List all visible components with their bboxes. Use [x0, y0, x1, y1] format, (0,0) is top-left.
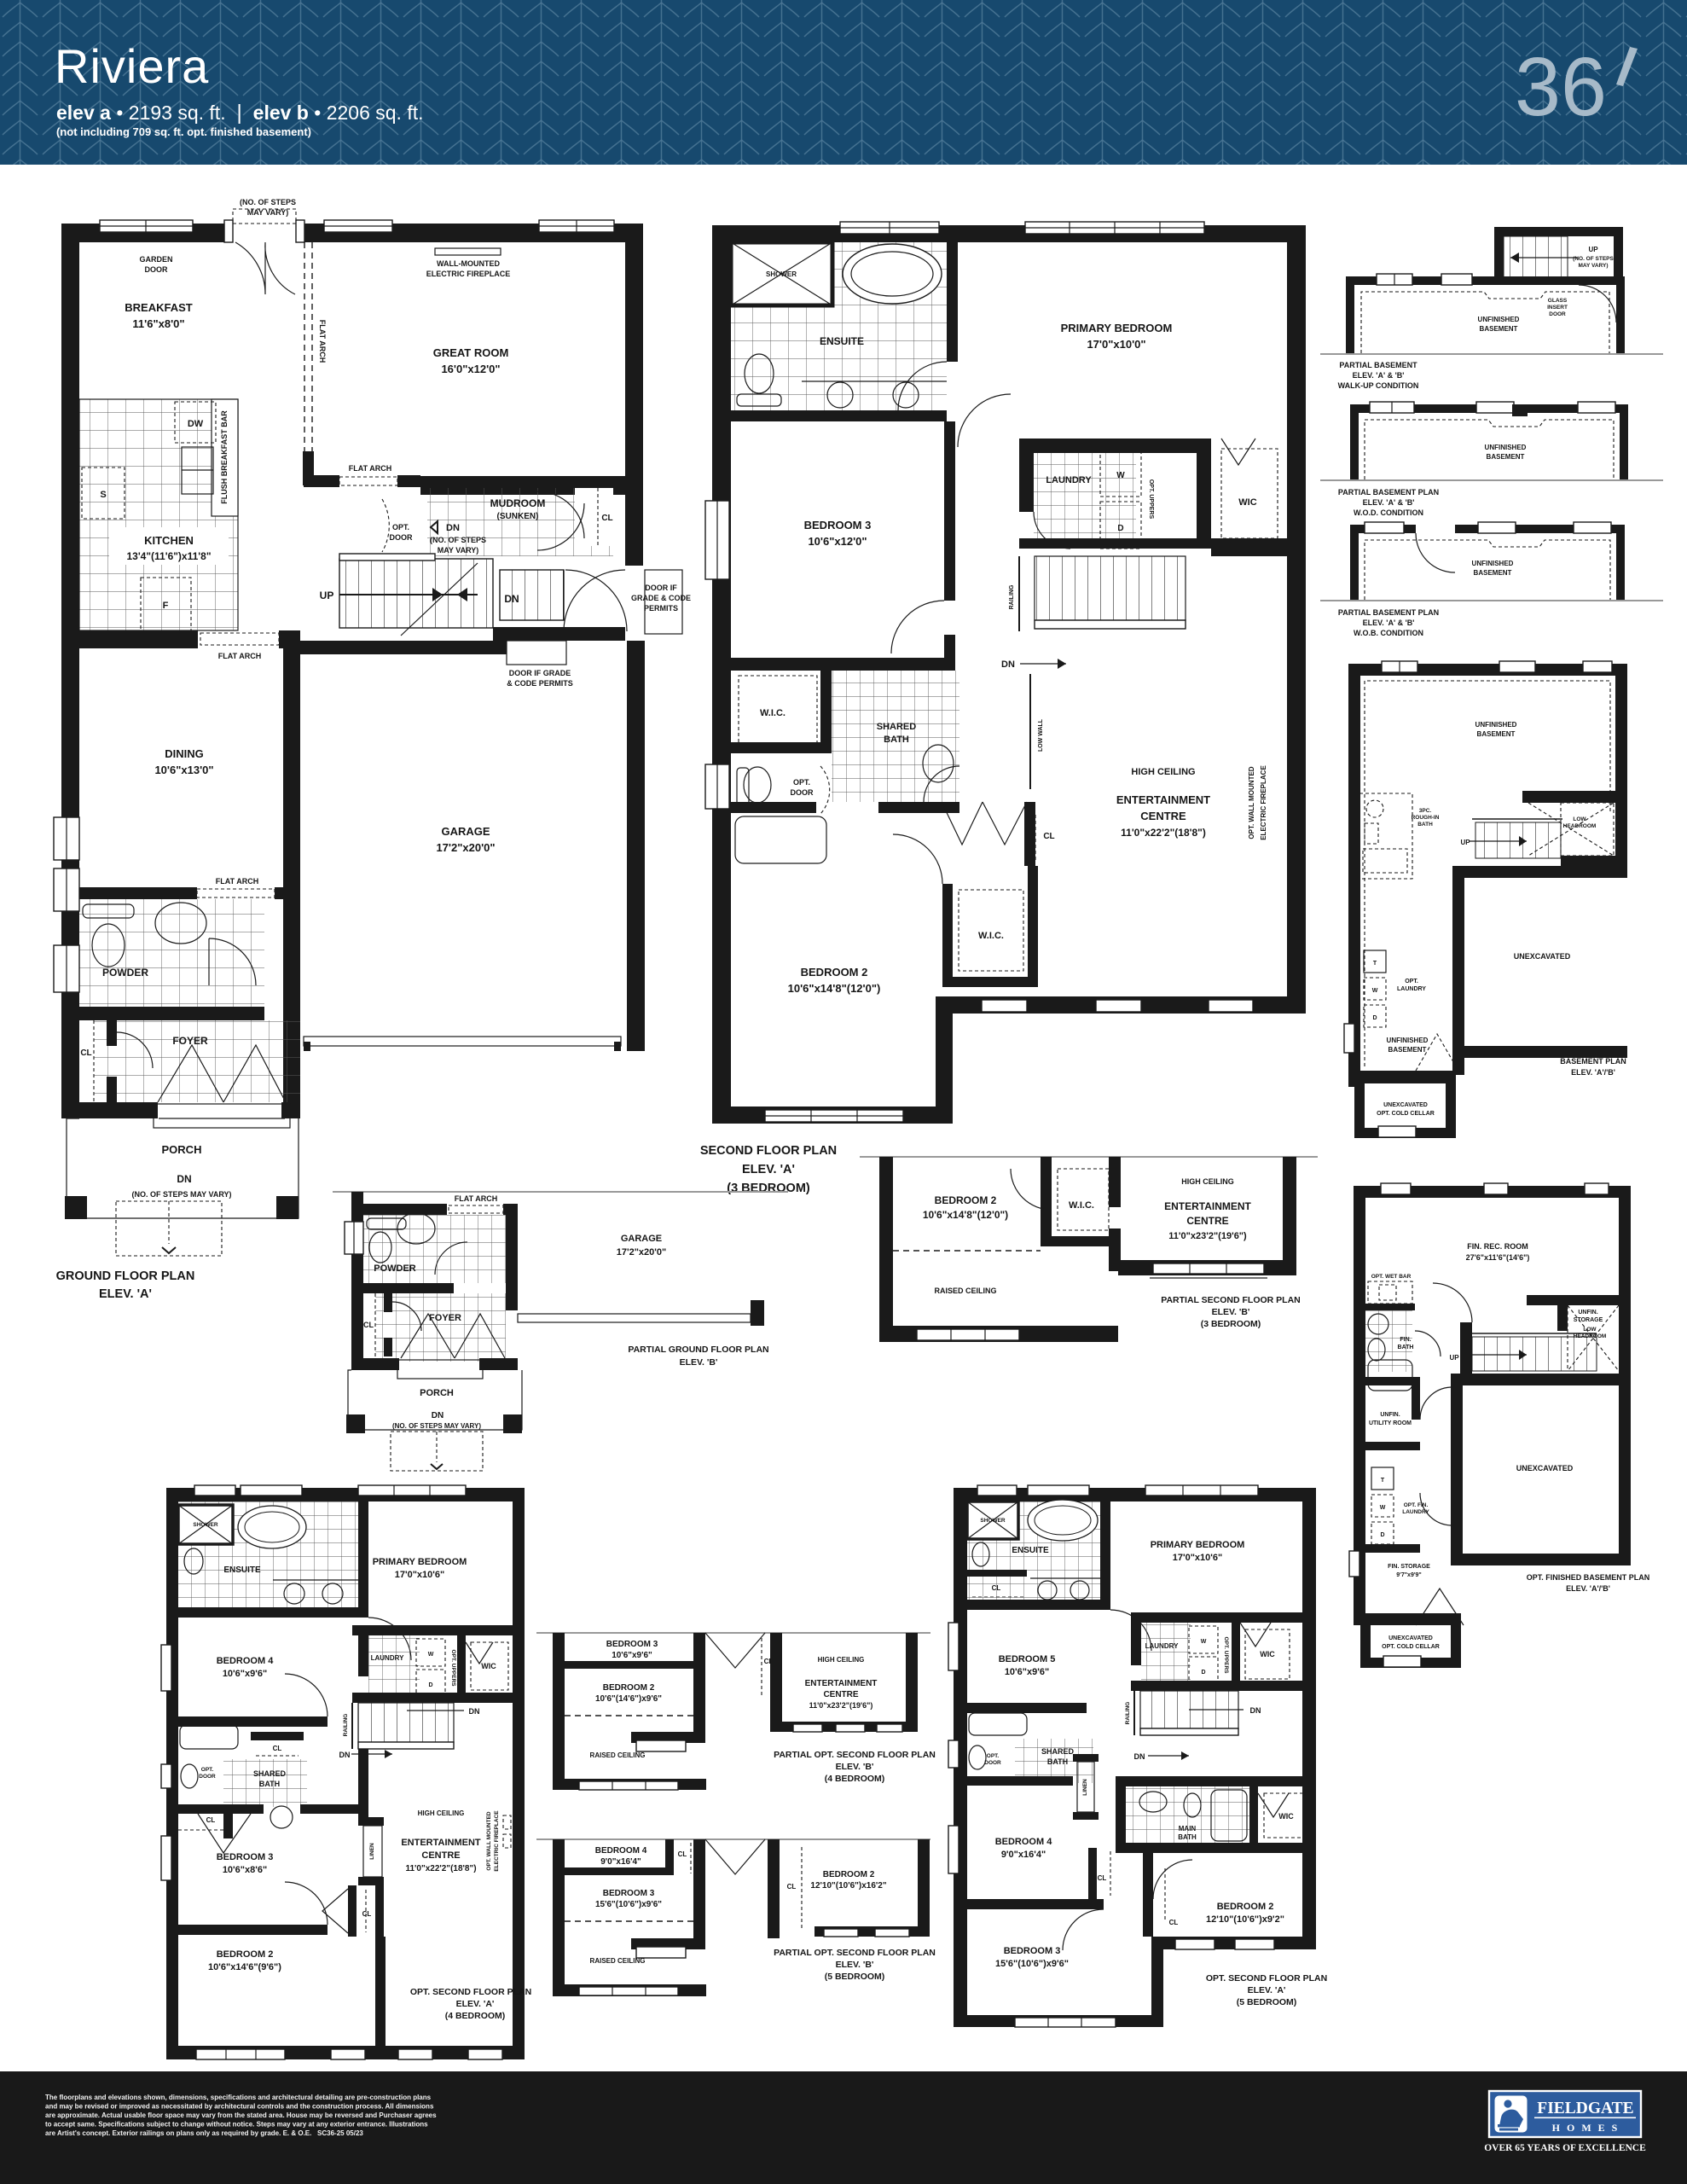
svg-text:W: W: [428, 1652, 434, 1658]
svg-text:CENTRE: CENTRE: [421, 1850, 460, 1861]
svg-text:FOYER: FOYER: [429, 1313, 461, 1323]
svg-text:PRIMARY BEDROOM: PRIMARY BEDROOM: [1061, 322, 1173, 334]
svg-text:ELEV. 'A' & 'B': ELEV. 'A' & 'B': [1363, 498, 1415, 507]
svg-text:UNFINISHED: UNFINISHED: [1472, 560, 1514, 567]
svg-text:17'2"x20'0": 17'2"x20'0": [436, 841, 495, 854]
svg-text:DOOR: DOOR: [199, 1774, 216, 1780]
svg-text:11'0"x22'2"(18'8"): 11'0"x22'2"(18'8"): [405, 1864, 476, 1873]
svg-text:MAIN: MAIN: [1179, 1825, 1197, 1833]
svg-text:T: T: [1381, 1478, 1385, 1484]
svg-text:PARTIAL BASEMENT: PARTIAL BASEMENT: [1339, 361, 1417, 369]
svg-text:WIC: WIC: [481, 1662, 496, 1670]
svg-text:(SUNKEN): (SUNKEN): [497, 512, 539, 521]
svg-text:10'6"x12'0": 10'6"x12'0": [808, 535, 867, 548]
svg-text:9'7"x9'9": 9'7"x9'9": [1396, 1572, 1421, 1578]
svg-text:FLAT ARCH: FLAT ARCH: [349, 464, 392, 473]
svg-text:CENTRE: CENTRE: [1186, 1215, 1228, 1227]
svg-text:SHARED: SHARED: [1041, 1747, 1075, 1756]
svg-text:LOW: LOW: [1583, 1327, 1597, 1333]
svg-text:PRIMARY BEDROOM: PRIMARY BEDROOM: [1151, 1540, 1245, 1550]
svg-text:17'2"x20'0": 17'2"x20'0": [617, 1247, 667, 1258]
svg-text:BATH: BATH: [1178, 1833, 1197, 1841]
svg-text:UNFINISHED: UNFINISHED: [1485, 444, 1527, 451]
svg-text:W.I.C.: W.I.C.: [1069, 1200, 1094, 1211]
svg-text:DN: DN: [1001, 659, 1015, 670]
svg-text:The floorplans and elevations: The floorplans and elevations shown, dim…: [45, 2094, 432, 2101]
svg-text:CL: CL: [362, 1910, 372, 1918]
svg-text:(3 BEDROOM): (3 BEDROOM): [1201, 1319, 1261, 1329]
svg-text:ELEV. 'B': ELEV. 'B': [836, 1960, 874, 1970]
svg-text:PORCH: PORCH: [162, 1143, 202, 1156]
svg-text:(not including 709 sq. ft. opt: (not including 709 sq. ft. opt. finished…: [56, 125, 311, 138]
svg-text:10'6"(14'6")x9'6": 10'6"(14'6")x9'6": [595, 1694, 662, 1704]
svg-text:BATH: BATH: [1417, 822, 1433, 828]
svg-text:UNEXCAVATED: UNEXCAVATED: [1516, 1464, 1574, 1472]
svg-text:OPT. UPPERS: OPT. UPPERS: [1223, 1637, 1229, 1675]
svg-text:12'10"(10'6")x9'2": 12'10"(10'6")x9'2": [1206, 1914, 1284, 1925]
svg-text:BASEMENT: BASEMENT: [1480, 325, 1518, 333]
svg-text:GARAGE: GARAGE: [621, 1234, 662, 1244]
svg-text:BASEMENT: BASEMENT: [1388, 1046, 1427, 1054]
svg-text:RAILING: RAILING: [343, 1714, 349, 1737]
svg-text:UNFIN.: UNFIN.: [1578, 1310, 1597, 1316]
svg-text:POWDER: POWDER: [374, 1263, 416, 1274]
svg-text:DN: DN: [339, 1751, 351, 1759]
svg-text:ELEV. 'B': ELEV. 'B': [680, 1357, 718, 1368]
svg-text:RAILING: RAILING: [1125, 1702, 1131, 1725]
svg-text:11'6"x8'0": 11'6"x8'0": [132, 317, 184, 330]
svg-text:(NO. OF STEPS: (NO. OF STEPS: [1573, 256, 1614, 262]
svg-text:BEDROOM 4: BEDROOM 4: [217, 1656, 275, 1666]
svg-text:OVER 65 YEARS OF EXCELLENCE: OVER 65 YEARS OF EXCELLENCE: [1484, 2143, 1646, 2153]
svg-text:UP: UP: [1449, 1354, 1459, 1362]
svg-text:10'6"x14'8"(12'0"): 10'6"x14'8"(12'0"): [788, 982, 881, 995]
svg-text:LAUNDRY: LAUNDRY: [371, 1654, 404, 1662]
svg-text:OPT.: OPT.: [1405, 979, 1418, 985]
svg-text:17'0"x10'6": 17'0"x10'6": [1173, 1553, 1223, 1563]
svg-text:W: W: [1116, 471, 1125, 480]
svg-text:BASEMENT: BASEMENT: [1477, 730, 1516, 738]
svg-text:BEDROOM 2: BEDROOM 2: [603, 1683, 655, 1693]
svg-text:PARTIAL OPT. SECOND FLOOR PLAN: PARTIAL OPT. SECOND FLOOR PLAN: [774, 1750, 936, 1760]
svg-text:FIN.: FIN.: [1400, 1337, 1411, 1343]
svg-text:DN: DN: [1250, 1706, 1261, 1715]
svg-text:BATH: BATH: [884, 735, 909, 745]
svg-text:ELEV. 'A' & 'B': ELEV. 'A' & 'B': [1353, 371, 1405, 380]
svg-text:SHARED: SHARED: [253, 1769, 287, 1778]
svg-text:FIELDGATE: FIELDGATE: [1537, 2100, 1633, 2117]
svg-text:to accept same. Specifications: to accept same. Specifications subject t…: [45, 2121, 428, 2129]
svg-text:PARTIAL SECOND FLOOR PLAN: PARTIAL SECOND FLOOR PLAN: [1161, 1295, 1301, 1305]
svg-text:BEDROOM 4: BEDROOM 4: [995, 1837, 1053, 1847]
svg-text:S: S: [100, 490, 106, 500]
svg-text:BEDROOM 3: BEDROOM 3: [1004, 1946, 1061, 1956]
svg-text:(4 BEDROOM): (4 BEDROOM): [825, 1774, 885, 1784]
svg-text:15'6"(10'6")x9'6": 15'6"(10'6")x9'6": [595, 1900, 662, 1909]
svg-text:9'0"x16'4": 9'0"x16'4": [1001, 1850, 1046, 1860]
svg-text:10'6"x9'6": 10'6"x9'6": [223, 1669, 267, 1679]
svg-text:CL: CL: [1098, 1874, 1107, 1882]
svg-text:10'6"x8'6": 10'6"x8'6": [223, 1865, 267, 1875]
svg-text:PARTIAL BASEMENT PLAN: PARTIAL BASEMENT PLAN: [1338, 608, 1439, 617]
svg-text:DW: DW: [188, 419, 204, 429]
svg-text:BEDROOM 4: BEDROOM 4: [595, 1846, 647, 1856]
svg-text:(5 BEDROOM): (5 BEDROOM): [1237, 1997, 1297, 2007]
svg-text:D: D: [428, 1682, 432, 1688]
svg-text:(4 BEDROOM): (4 BEDROOM): [445, 2011, 506, 2021]
svg-text:10'6"x14'8"(12'0"): 10'6"x14'8"(12'0"): [923, 1209, 1008, 1221]
svg-text:ENTERTAINMENT: ENTERTAINMENT: [401, 1838, 481, 1848]
svg-text:17'0"x10'0": 17'0"x10'0": [1087, 338, 1145, 351]
svg-text:DINING: DINING: [165, 747, 204, 760]
svg-text:ENSUITE: ENSUITE: [820, 335, 864, 347]
svg-text:Riviera: Riviera: [55, 39, 209, 93]
svg-text:36: 36: [1515, 40, 1607, 133]
svg-text:ELEV. 'A': ELEV. 'A': [1248, 1985, 1286, 1995]
svg-text:10'6"x13'0": 10'6"x13'0": [154, 764, 213, 776]
svg-text:UNFINISHED: UNFINISHED: [1475, 721, 1517, 729]
svg-text:HIGH CEILING: HIGH CEILING: [818, 1656, 865, 1664]
svg-text:GLASS: GLASS: [1548, 298, 1568, 304]
svg-text:BEDROOM 3: BEDROOM 3: [606, 1640, 658, 1649]
svg-text:GARDEN: GARDEN: [139, 255, 172, 264]
svg-text:ELECTRIC FIREPLACE: ELECTRIC FIREPLACE: [1260, 765, 1267, 840]
svg-text:12'10"(10'6")x16'2": 12'10"(10'6")x16'2": [810, 1881, 886, 1891]
svg-text:OPT. FIN.: OPT. FIN.: [1404, 1502, 1429, 1508]
svg-text:BASEMENT PLAN: BASEMENT PLAN: [1560, 1057, 1626, 1066]
svg-text:are Artist's concept. Exterior: are Artist's concept. Exterior railings …: [45, 2129, 363, 2137]
svg-text:INSERT: INSERT: [1547, 305, 1568, 311]
svg-text:GREAT ROOM: GREAT ROOM: [433, 346, 509, 359]
svg-text:RAISED CEILING: RAISED CEILING: [590, 1751, 646, 1759]
svg-text:CL: CL: [601, 514, 612, 523]
svg-text:UNEXCAVATED: UNEXCAVATED: [1383, 1102, 1428, 1108]
svg-text:FLAT ARCH: FLAT ARCH: [216, 877, 259, 886]
svg-text:DOOR IF GRADE: DOOR IF GRADE: [509, 669, 571, 677]
svg-text:BEDROOM 3: BEDROOM 3: [603, 1889, 655, 1898]
svg-text:POWDER: POWDER: [102, 967, 148, 979]
svg-text:PARTIAL BASEMENT PLAN: PARTIAL BASEMENT PLAN: [1338, 488, 1439, 497]
svg-text:CENTRE: CENTRE: [823, 1690, 858, 1699]
svg-text:10'6"x14'6"(9'6"): 10'6"x14'6"(9'6"): [208, 1962, 281, 1972]
svg-text:OPT. SECOND FLOOR PLAN: OPT. SECOND FLOOR PLAN: [410, 1987, 531, 1997]
svg-text:elev a • 2193 sq. ft. | elev: elev a • 2193 sq. ft. | elev b • 2206 sq…: [56, 101, 424, 125]
svg-text:ELEV. 'A'/'B': ELEV. 'A'/'B': [1566, 1584, 1610, 1593]
svg-text:(5 BEDROOM): (5 BEDROOM): [825, 1972, 885, 1982]
svg-text:GROUND FLOOR PLAN: GROUND FLOOR PLAN: [56, 1269, 195, 1283]
svg-text:UNFINISHED: UNFINISHED: [1478, 316, 1520, 323]
svg-text:W.O.B. CONDITION: W.O.B. CONDITION: [1354, 629, 1423, 637]
svg-text:FLUSH BREAKFAST BAR: FLUSH BREAKFAST BAR: [220, 410, 229, 504]
svg-text:MAY VARY): MAY VARY): [1578, 263, 1608, 269]
svg-text:(NO. OF STEPS: (NO. OF STEPS: [240, 198, 296, 206]
svg-text:LINEN: LINEN: [1082, 1779, 1088, 1796]
svg-text:W: W: [1372, 988, 1378, 994]
svg-text:11'0"x23'2"(19'6"): 11'0"x23'2"(19'6"): [1168, 1231, 1247, 1241]
svg-text:BREAKFAST: BREAKFAST: [125, 301, 193, 314]
svg-text:CL: CL: [992, 1584, 1001, 1592]
svg-text:OPT. FINISHED BASEMENT PLAN: OPT. FINISHED BASEMENT PLAN: [1527, 1573, 1650, 1582]
svg-text:13'4"(11'6")x11'8": 13'4"(11'6")x11'8": [126, 550, 211, 562]
svg-text:CL: CL: [787, 1883, 797, 1891]
svg-text:SHARED: SHARED: [877, 722, 917, 732]
svg-text:W.I.C.: W.I.C.: [978, 931, 1004, 941]
svg-text:DOOR: DOOR: [791, 788, 815, 797]
svg-text:CL: CL: [678, 1850, 687, 1858]
svg-text:& CODE PERMITS: & CODE PERMITS: [507, 679, 573, 688]
svg-text:27'6"x11'6"(14'6"): 27'6"x11'6"(14'6"): [1466, 1253, 1530, 1262]
svg-text:CL: CL: [1169, 1919, 1179, 1926]
svg-text:RAISED CEILING: RAISED CEILING: [934, 1287, 996, 1295]
svg-text:LINEN: LINEN: [369, 1843, 375, 1860]
svg-text:PARTIAL GROUND FLOOR PLAN: PARTIAL GROUND FLOOR PLAN: [628, 1345, 768, 1355]
svg-text:UNEXCAVATED: UNEXCAVATED: [1388, 1635, 1433, 1641]
svg-text:ENSUITE: ENSUITE: [223, 1565, 261, 1575]
svg-text:BATH: BATH: [1047, 1757, 1068, 1766]
svg-text:DN: DN: [177, 1173, 191, 1185]
svg-text:(NO. OF STEPS MAY VARY): (NO. OF STEPS MAY VARY): [392, 1422, 481, 1430]
svg-text:BEDROOM 5: BEDROOM 5: [999, 1654, 1056, 1664]
svg-text:PERMITS: PERMITS: [644, 604, 678, 613]
svg-text:UP: UP: [320, 590, 334, 601]
svg-text:RAILING: RAILING: [1009, 584, 1015, 609]
svg-text:FOYER: FOYER: [172, 1035, 208, 1047]
svg-text:BEDROOM 3: BEDROOM 3: [804, 519, 872, 531]
svg-text:BEDROOM 2: BEDROOM 2: [801, 966, 868, 979]
svg-text:and may be revised or improved: and may be revised or improved as necess…: [45, 2103, 434, 2111]
svg-text:ELECTRIC FIREPLACE: ELECTRIC FIREPLACE: [426, 270, 511, 278]
svg-text:ENTERTAINMENT: ENTERTAINMENT: [805, 1679, 878, 1688]
svg-text:BEDROOM 2: BEDROOM 2: [823, 1870, 875, 1879]
svg-text:BATH: BATH: [1398, 1345, 1414, 1350]
svg-text:15'6"(10'6")x9'6": 15'6"(10'6")x9'6": [995, 1959, 1069, 1969]
svg-text:F: F: [163, 601, 169, 611]
svg-text:(3 BEDROOM): (3 BEDROOM): [727, 1182, 810, 1195]
svg-text:LAUNDRY: LAUNDRY: [1145, 1642, 1179, 1650]
svg-text:OPT. WET BAR: OPT. WET BAR: [1371, 1274, 1412, 1280]
svg-text:are approximate. Actual usable: are approximate. Actual usable floor spa…: [45, 2111, 437, 2119]
svg-text:D: D: [1372, 1015, 1377, 1021]
svg-text:D: D: [1201, 1670, 1205, 1676]
svg-text:PORCH: PORCH: [420, 1388, 454, 1398]
svg-text:DN: DN: [469, 1707, 480, 1716]
svg-text:D: D: [1380, 1532, 1384, 1538]
svg-text:FLAT ARCH: FLAT ARCH: [455, 1194, 498, 1203]
svg-text:UP: UP: [1460, 839, 1470, 846]
svg-text:FLAT ARCH: FLAT ARCH: [318, 320, 327, 363]
svg-text:OPT.: OPT.: [793, 778, 810, 787]
svg-text:(NO. OF STEPS MAY VARY): (NO. OF STEPS MAY VARY): [131, 1190, 231, 1199]
svg-text:BEDROOM 2: BEDROOM 2: [217, 1949, 274, 1960]
svg-text:ELEV. 'B': ELEV. 'B': [836, 1762, 874, 1772]
svg-text:ELEV. 'A' & 'B': ELEV. 'A' & 'B': [1363, 619, 1415, 627]
svg-text:DN: DN: [504, 593, 519, 605]
svg-text:OPT. COLD CELLAR: OPT. COLD CELLAR: [1377, 1111, 1435, 1117]
svg-text:DOOR IF: DOOR IF: [645, 584, 677, 592]
svg-text:STORAGE: STORAGE: [1574, 1317, 1603, 1323]
svg-text:HIGH CEILING: HIGH CEILING: [1181, 1177, 1234, 1186]
svg-text:MUDROOM: MUDROOM: [490, 497, 546, 509]
svg-text:WIC: WIC: [1278, 1812, 1294, 1821]
svg-text:FLAT ARCH: FLAT ARCH: [218, 652, 262, 660]
svg-text:HEADROOM: HEADROOM: [1563, 823, 1597, 829]
svg-text:OPT. UPPERS: OPT. UPPERS: [1148, 479, 1154, 520]
svg-text:OPT.: OPT.: [201, 1767, 214, 1773]
svg-text:MAY VARY): MAY VARY): [438, 546, 479, 555]
svg-text:ENTERTAINMENT: ENTERTAINMENT: [1116, 793, 1210, 806]
svg-text:DN: DN: [446, 523, 460, 533]
svg-text:WALK-UP CONDITION: WALK-UP CONDITION: [1338, 381, 1419, 390]
svg-text:ENTERTAINMENT: ENTERTAINMENT: [1164, 1200, 1251, 1212]
svg-text:ELEV. 'A': ELEV. 'A': [99, 1287, 152, 1301]
svg-text:SECOND FLOOR PLAN: SECOND FLOOR PLAN: [700, 1144, 837, 1158]
svg-text:LOW: LOW: [1573, 816, 1586, 822]
svg-text:PARTIAL OPT. SECOND FLOOR PLAN: PARTIAL OPT. SECOND FLOOR PLAN: [774, 1948, 936, 1958]
svg-text:CL: CL: [80, 1048, 91, 1058]
svg-text:11'0"x23'2"(19'6"): 11'0"x23'2"(19'6"): [809, 1701, 873, 1710]
svg-text:BEDROOM 2: BEDROOM 2: [935, 1194, 997, 1206]
svg-text:OPT. WALL MOUNTED: OPT. WALL MOUNTED: [1248, 766, 1255, 839]
svg-text:BASEMENT: BASEMENT: [1487, 453, 1525, 461]
svg-text:SHOWER: SHOWER: [766, 270, 797, 278]
svg-text:BASEMENT: BASEMENT: [1474, 569, 1512, 577]
svg-text:KITCHEN: KITCHEN: [144, 534, 194, 547]
svg-text:10'6"x9'6": 10'6"x9'6": [612, 1651, 652, 1660]
svg-text:10'6"x9'6": 10'6"x9'6": [1005, 1667, 1049, 1677]
svg-text:OPT.: OPT.: [987, 1753, 1000, 1759]
svg-text:GRADE & CODE: GRADE & CODE: [631, 594, 691, 602]
svg-text:DOOR: DOOR: [390, 533, 414, 542]
svg-text:ELEV. 'A'/'B': ELEV. 'A'/'B': [1571, 1068, 1615, 1077]
svg-text:W: W: [1201, 1639, 1207, 1645]
svg-text:CL: CL: [363, 1321, 374, 1329]
svg-text:OPT. SECOND FLOOR PLAN: OPT. SECOND FLOOR PLAN: [1206, 1973, 1327, 1984]
svg-text:CENTRE: CENTRE: [1140, 810, 1186, 822]
svg-text:WALL-MOUNTED: WALL-MOUNTED: [437, 259, 500, 268]
svg-text:OPT. WALL MOUNTED: OPT. WALL MOUNTED: [486, 1811, 492, 1871]
svg-text:CL: CL: [206, 1816, 216, 1824]
svg-text:17'0"x10'6": 17'0"x10'6": [395, 1570, 445, 1580]
svg-text:BEDROOM 2: BEDROOM 2: [1217, 1902, 1274, 1912]
svg-text:DOOR: DOOR: [145, 265, 169, 274]
svg-text:3PC.: 3PC.: [1419, 808, 1432, 814]
svg-text:ELECTRIC FIREPLACE: ELECTRIC FIREPLACE: [494, 1810, 500, 1872]
svg-text:UNFINISHED: UNFINISHED: [1387, 1037, 1429, 1044]
svg-text:UTILITY ROOM: UTILITY ROOM: [1369, 1420, 1412, 1426]
svg-text:ROUGH-IN: ROUGH-IN: [1412, 815, 1440, 821]
svg-text:UNFIN.: UNFIN.: [1380, 1412, 1400, 1418]
svg-text:9'0"x16'4": 9'0"x16'4": [600, 1857, 641, 1867]
svg-text:ELEV. 'A': ELEV. 'A': [456, 1999, 495, 2009]
svg-text:BATH: BATH: [259, 1780, 280, 1788]
svg-text:T: T: [1373, 961, 1377, 967]
svg-text:HIGH CEILING: HIGH CEILING: [418, 1809, 465, 1817]
svg-text:PRIMARY BEDROOM: PRIMARY BEDROOM: [373, 1557, 467, 1567]
svg-text:ENSUITE: ENSUITE: [1012, 1546, 1049, 1555]
svg-text:UNEXCAVATED: UNEXCAVATED: [1514, 952, 1571, 961]
svg-text:FIN. REC. ROOM: FIN. REC. ROOM: [1467, 1242, 1528, 1251]
svg-text:W.I.C.: W.I.C.: [760, 708, 786, 718]
svg-text:DN: DN: [1134, 1752, 1145, 1761]
svg-text:FIN. STORAGE: FIN. STORAGE: [1388, 1564, 1430, 1570]
svg-text:OPT.: OPT.: [392, 523, 409, 531]
svg-text:HIGH CEILING: HIGH CEILING: [1131, 767, 1195, 777]
svg-text:DOOR: DOOR: [1549, 311, 1566, 317]
svg-text:GARAGE: GARAGE: [441, 825, 490, 838]
svg-text:CL: CL: [273, 1745, 282, 1752]
svg-text:WIC: WIC: [1238, 497, 1256, 508]
svg-text:W.O.D. CONDITION: W.O.D. CONDITION: [1354, 508, 1423, 517]
svg-text:LAUNDRY: LAUNDRY: [1397, 986, 1426, 992]
svg-text:LAUNDRY: LAUNDRY: [1046, 475, 1092, 485]
svg-text:BEDROOM 3: BEDROOM 3: [217, 1852, 274, 1862]
svg-text:SHOWER: SHOWER: [980, 1518, 1006, 1524]
svg-text:DN: DN: [432, 1411, 443, 1420]
svg-text:(NO. OF STEPS: (NO. OF STEPS: [430, 536, 486, 544]
svg-text:CL: CL: [1043, 832, 1054, 841]
svg-text:OPT. COLD CELLAR: OPT. COLD CELLAR: [1382, 1644, 1440, 1650]
svg-text:16'0"x12'0": 16'0"x12'0": [441, 363, 500, 375]
svg-text:D: D: [1117, 524, 1123, 533]
svg-text:WIC: WIC: [1260, 1650, 1275, 1658]
svg-text:DOOR: DOOR: [984, 1760, 1001, 1766]
svg-text:OPT. UPPERS: OPT. UPPERS: [450, 1650, 456, 1687]
svg-text:ELEV. 'A': ELEV. 'A': [742, 1163, 795, 1176]
svg-text:W: W: [1380, 1505, 1386, 1511]
svg-text:LOW WALL: LOW WALL: [1038, 718, 1044, 752]
svg-text:HOMES: HOMES: [1552, 2122, 1625, 2134]
svg-text:UP: UP: [1588, 246, 1598, 253]
svg-text:ELEV. 'B': ELEV. 'B': [1212, 1307, 1250, 1317]
svg-text:SHOWER: SHOWER: [193, 1522, 218, 1528]
svg-text:11'0"x22'2"(18'8"): 11'0"x22'2"(18'8"): [1121, 827, 1206, 839]
